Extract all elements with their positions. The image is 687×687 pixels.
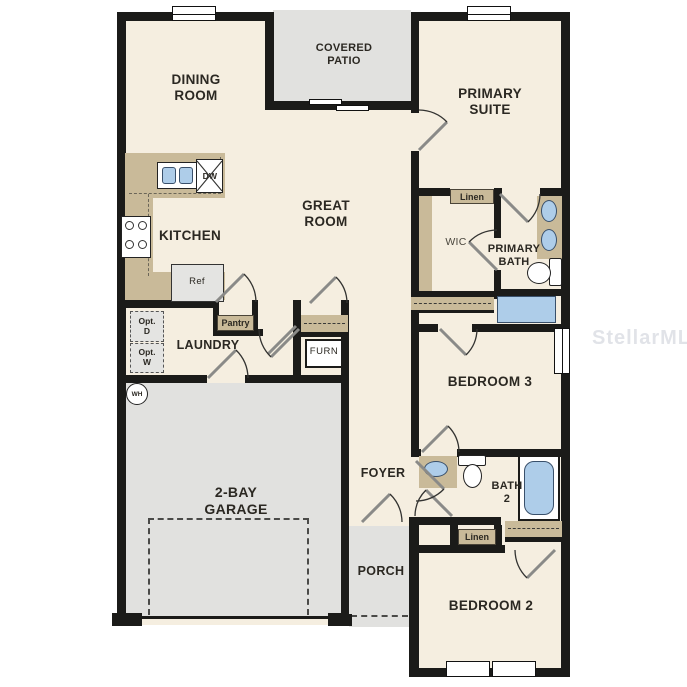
- pantry-closet: Pantry: [217, 315, 254, 331]
- room-label-bedroom3: BEDROOM 3: [448, 374, 532, 390]
- wic-shelf: [411, 297, 494, 310]
- stove-burner: [125, 240, 134, 249]
- wall: [339, 614, 352, 626]
- optional-washer: Opt. W: [130, 343, 164, 373]
- wall: [411, 324, 419, 455]
- bedroom2-closet-shelf: [505, 521, 562, 537]
- water-heater-icon: WH: [126, 383, 148, 405]
- room-label-kitchen: KITCHEN: [159, 228, 221, 244]
- wall: [411, 188, 450, 196]
- wall: [494, 196, 501, 238]
- wall: [117, 12, 126, 625]
- wall: [409, 517, 419, 677]
- dishwasher-label: DW: [203, 171, 218, 181]
- bathtub-basin: [524, 461, 554, 515]
- wall: [411, 310, 494, 313]
- room-label-bath2: BATH 2: [492, 480, 523, 506]
- room-label-primary-suite: PRIMARY SUITE: [458, 86, 522, 118]
- window: [172, 6, 216, 21]
- furnace-closet-shelf: [301, 315, 348, 332]
- wall: [505, 537, 562, 542]
- wall: [411, 324, 438, 332]
- refrigerator-label: Ref: [189, 276, 205, 287]
- stove-burner: [138, 240, 147, 249]
- room-label-covered-patio: COVERED PATIO: [316, 42, 373, 68]
- wall: [112, 613, 142, 626]
- toilet-icon: [463, 464, 482, 488]
- garage-door-line: [140, 616, 330, 619]
- sink-basin: [162, 167, 176, 184]
- stove-burner: [125, 221, 134, 230]
- optional-dryer: Opt. D: [130, 311, 164, 342]
- wall: [117, 375, 207, 383]
- wall: [265, 12, 274, 109]
- room-label-bedroom2: BEDROOM 2: [449, 598, 533, 614]
- wall: [245, 375, 349, 383]
- porch-edge-dashed: [351, 615, 408, 617]
- wall: [494, 289, 562, 296]
- floorplan: DW Ref Opt. D Opt. W WH FURN Linen Pantr…: [0, 0, 687, 687]
- room-label-great-room: GREAT ROOM: [302, 198, 350, 230]
- room-label-garage: 2-BAY GARAGE: [204, 484, 267, 517]
- linen-closet: Linen: [458, 529, 496, 545]
- bathroom-sink-icon: [541, 200, 557, 222]
- sink-basin: [179, 167, 193, 184]
- sliding-glass-door: [336, 105, 369, 111]
- garage-door-dashed-outline: [148, 518, 309, 615]
- wall: [494, 188, 502, 196]
- window: [446, 661, 490, 677]
- window: [554, 328, 570, 374]
- wall: [540, 188, 570, 196]
- wic-shelving: [419, 196, 432, 291]
- room-label-laundry: LAUNDRY: [177, 338, 240, 353]
- room-label-wic: WIC: [445, 236, 466, 248]
- wall: [411, 12, 419, 113]
- wall: [411, 517, 501, 525]
- wall: [411, 668, 570, 677]
- room-label-foyer: FOYER: [361, 466, 406, 481]
- bathroom-sink-icon: [424, 461, 448, 477]
- stove-burner: [138, 221, 147, 230]
- room-label-porch: PORCH: [358, 564, 405, 579]
- bathroom-sink-icon: [541, 229, 557, 251]
- linen-closet: Linen: [450, 189, 494, 204]
- shower-icon: [497, 296, 556, 323]
- wall: [419, 545, 505, 553]
- wall: [293, 300, 301, 383]
- stellar-mls-watermark: StellarMLS: [592, 327, 687, 350]
- furnace-label: FURN: [310, 346, 338, 357]
- room-label-primary-bath: PRIMARY BATH: [488, 243, 540, 269]
- window: [492, 661, 536, 677]
- window: [467, 6, 511, 21]
- room-label-dining: DINING ROOM: [171, 72, 220, 104]
